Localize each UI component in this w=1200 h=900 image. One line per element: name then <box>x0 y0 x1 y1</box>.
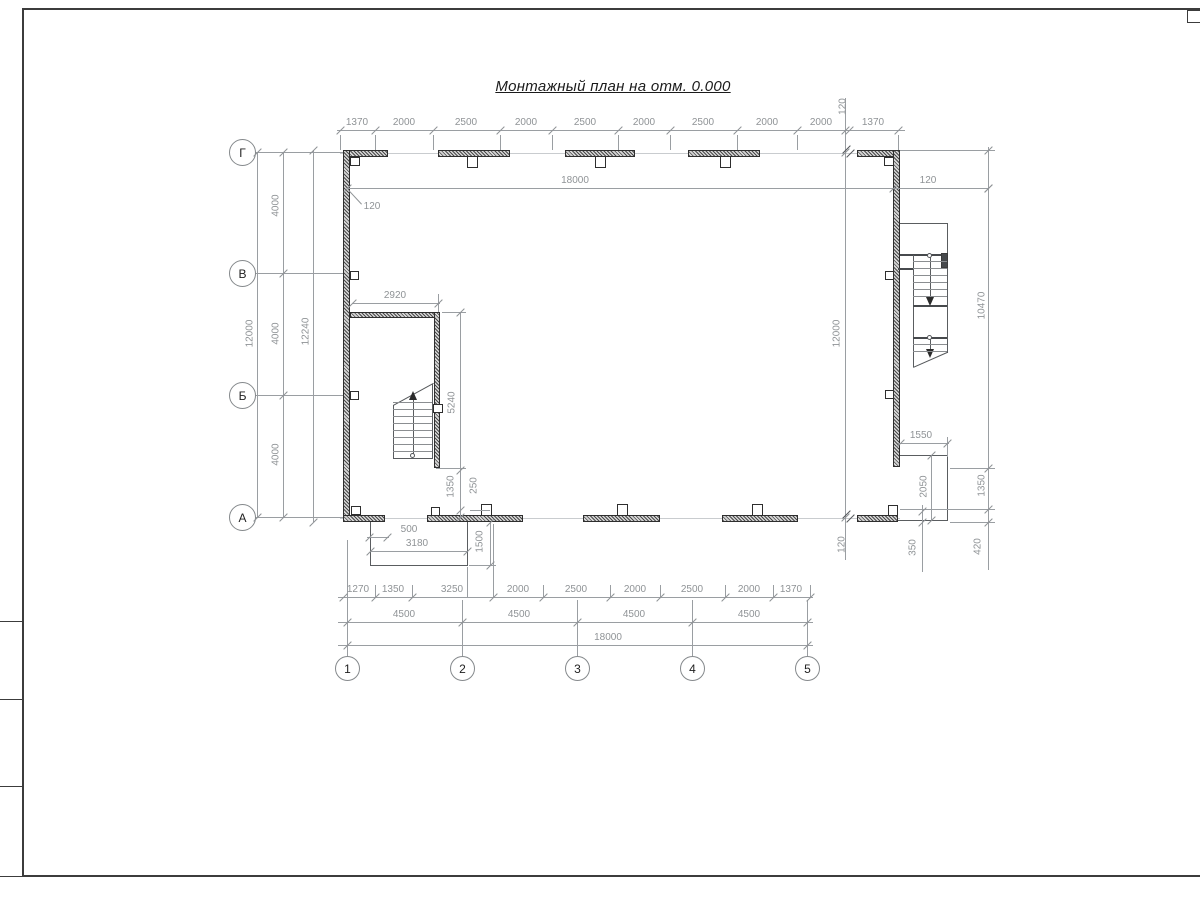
frame-bottom <box>22 875 1200 877</box>
dim-line-5240 <box>460 312 461 517</box>
axis-stem <box>692 600 693 656</box>
dim-line-3180 <box>370 551 467 552</box>
dim-text: 2500 <box>565 117 605 128</box>
dim-text: 500 <box>389 524 429 535</box>
dim-text: 2500 <box>672 584 712 595</box>
stair-right-edge <box>432 384 433 458</box>
landing-edge <box>898 268 914 270</box>
dim-text: 350 <box>908 528 919 568</box>
ext-line <box>433 135 434 150</box>
ext-line <box>670 135 671 150</box>
dim-text: 18000 <box>578 632 638 643</box>
dim-text: 2920 <box>370 290 420 301</box>
porch-left-edge <box>370 522 371 565</box>
dim-text: 12000 <box>832 309 843 359</box>
dim-text: 4500 <box>379 609 429 620</box>
ext-line <box>947 437 948 457</box>
dim-text: 1370 <box>773 584 809 595</box>
dim-text: 120 <box>838 87 849 127</box>
dim-text: 1350 <box>375 584 411 595</box>
dim-text: 2000 <box>506 117 546 128</box>
stair-wall-horizontal <box>350 312 440 318</box>
dim-text: 3180 <box>392 538 442 549</box>
dim-text: 2000 <box>747 117 787 128</box>
ext-line <box>375 135 376 150</box>
dim-line-top-chain <box>337 130 905 131</box>
wall-left <box>343 150 350 522</box>
axis-stem <box>462 600 463 656</box>
dim-text: 120 <box>837 525 848 565</box>
wall-tab <box>752 504 763 516</box>
axis-circle-v: В <box>229 260 256 287</box>
ext-line <box>340 135 341 150</box>
wall-tab <box>720 156 731 168</box>
wall-panel <box>857 515 898 522</box>
dim-text: 2000 <box>624 117 664 128</box>
axis-leader <box>255 395 343 396</box>
axis-circle-2: 2 <box>450 656 475 681</box>
dim-text: 4500 <box>494 609 544 620</box>
axis-stem <box>807 600 808 656</box>
corner-notch <box>351 506 361 515</box>
wall-tab <box>350 391 359 400</box>
dim-line-bottom-total <box>338 645 813 646</box>
stair-step-line <box>393 423 432 424</box>
dim-text: 2500 <box>446 117 486 128</box>
dim-text: 18000 <box>550 175 600 186</box>
dim-line-2050 <box>931 455 932 520</box>
stair-down-arrow <box>926 297 934 306</box>
frame-top <box>22 8 1200 10</box>
stair-step-line <box>913 289 947 290</box>
wall-panel <box>722 515 798 522</box>
axis-stem <box>577 600 578 656</box>
dim-text: 12240 <box>301 307 312 357</box>
stair-step-line <box>913 344 947 345</box>
dim-line-bottom-chain1 <box>338 597 813 598</box>
stair-bottom-edge <box>393 458 433 459</box>
stair-step-line <box>393 430 432 431</box>
dim-text: 2000 <box>615 584 655 595</box>
dim-line-12240 <box>313 150 314 522</box>
dim-text: 120 <box>352 201 392 212</box>
dim-text: 2000 <box>729 584 769 595</box>
axis-leader <box>255 273 343 274</box>
frame-corner-box <box>1187 10 1200 23</box>
wall-tab <box>350 271 359 280</box>
dim-text: 4000 <box>271 186 282 226</box>
corner-notch <box>884 157 894 166</box>
stair-up-arrow <box>409 391 417 400</box>
wall-tab <box>617 504 628 516</box>
dim-line-4000 <box>283 152 284 517</box>
frame-binding-box <box>0 699 23 787</box>
drawing-sheet: Монтажный план на отм. 0.000 <box>0 0 1200 900</box>
wall-right <box>893 150 900 467</box>
landing-right <box>947 223 948 353</box>
wall-panel <box>583 515 660 522</box>
wall-tab <box>433 404 443 413</box>
porch-right-edge <box>467 522 468 565</box>
stair-step-line <box>913 351 947 352</box>
dim-text: 5240 <box>447 378 458 428</box>
wall-tab <box>595 156 606 168</box>
wall-panel <box>343 515 385 522</box>
dim-text: 1500 <box>475 522 486 562</box>
axis-circle-g: Г <box>229 139 256 166</box>
dim-text: 4500 <box>724 609 774 620</box>
axis-circle-5: 5 <box>795 656 820 681</box>
axis-circle-1: 1 <box>335 656 360 681</box>
dim-text: 420 <box>973 527 984 567</box>
ext-line <box>552 135 553 150</box>
wall-tab <box>885 390 894 399</box>
stair-step-line <box>913 296 947 297</box>
wall-tab <box>885 271 894 280</box>
axis-circle-3: 3 <box>565 656 590 681</box>
frame-binding-box <box>0 621 23 700</box>
dim-text: 12000 <box>245 309 256 359</box>
dim-text: 10470 <box>977 281 988 331</box>
dim-line-12000-right <box>845 98 846 560</box>
porch-bottom-edge <box>370 565 468 566</box>
dim-line-350 <box>922 505 923 572</box>
dim-text: 1350 <box>446 467 457 507</box>
dim-text: 250 <box>469 466 480 506</box>
dim-text: 2000 <box>498 584 538 595</box>
ext-line <box>898 135 899 150</box>
wall-tab <box>431 507 440 516</box>
stair-step-line <box>393 402 432 403</box>
axis-circle-4: 4 <box>680 656 705 681</box>
stair-direction-line <box>413 398 414 456</box>
ext-line <box>900 509 995 510</box>
ext-line <box>737 135 738 150</box>
dim-line-1550 <box>898 443 949 444</box>
ext-line <box>469 565 496 566</box>
ext-line <box>500 135 501 150</box>
stair-step-line <box>913 275 947 276</box>
dim-text: 2500 <box>683 117 723 128</box>
ext-line <box>442 312 466 313</box>
dim-text: 2000 <box>801 117 841 128</box>
dim-text: 2050 <box>919 467 930 507</box>
stair-start-circle <box>927 253 932 258</box>
stair-step-line <box>913 261 947 262</box>
stair-step-line <box>913 282 947 283</box>
dim-line-1500 <box>490 522 491 565</box>
stair-step-line <box>393 451 432 452</box>
stair-start-circle <box>927 335 932 340</box>
page-title: Монтажный план на отм. 0.000 <box>458 78 768 95</box>
stair-step-line <box>393 437 432 438</box>
stair-step-line <box>393 444 432 445</box>
dim-text: 4000 <box>271 314 282 354</box>
dim-text: 2000 <box>384 117 424 128</box>
stair-step-line <box>393 416 432 417</box>
corner-notch <box>350 157 360 166</box>
stair-step-line <box>393 409 432 410</box>
corner-notch <box>888 505 898 516</box>
axis-stem <box>347 540 348 656</box>
stair-wall-vertical <box>434 312 440 468</box>
ext-line <box>797 135 798 150</box>
wall-tab <box>467 156 478 168</box>
ext-line <box>470 510 490 511</box>
frame-binding-box <box>0 786 23 877</box>
ext-line <box>618 135 619 150</box>
stair-step-line <box>913 268 947 269</box>
dim-line-12000-left <box>257 152 258 517</box>
porch-top-edge <box>900 455 947 456</box>
stair-start-circle <box>410 453 415 458</box>
porch-right-edge <box>947 455 948 520</box>
ext-line <box>900 150 995 151</box>
axis-circle-a: А <box>229 504 256 531</box>
landing-top <box>900 223 947 224</box>
landing-edge <box>900 254 947 256</box>
dim-text: 1370 <box>853 117 893 128</box>
dim-text: 2500 <box>556 584 596 595</box>
axis-leader <box>255 517 343 518</box>
axis-circle-b: Б <box>229 382 256 409</box>
dim-text: 4000 <box>271 435 282 475</box>
dim-text: 4500 <box>609 609 659 620</box>
axis-leader <box>255 152 343 153</box>
dim-text: 120 <box>908 175 948 186</box>
dim-line-2920 <box>352 303 440 304</box>
dim-text: 3250 <box>432 584 472 595</box>
